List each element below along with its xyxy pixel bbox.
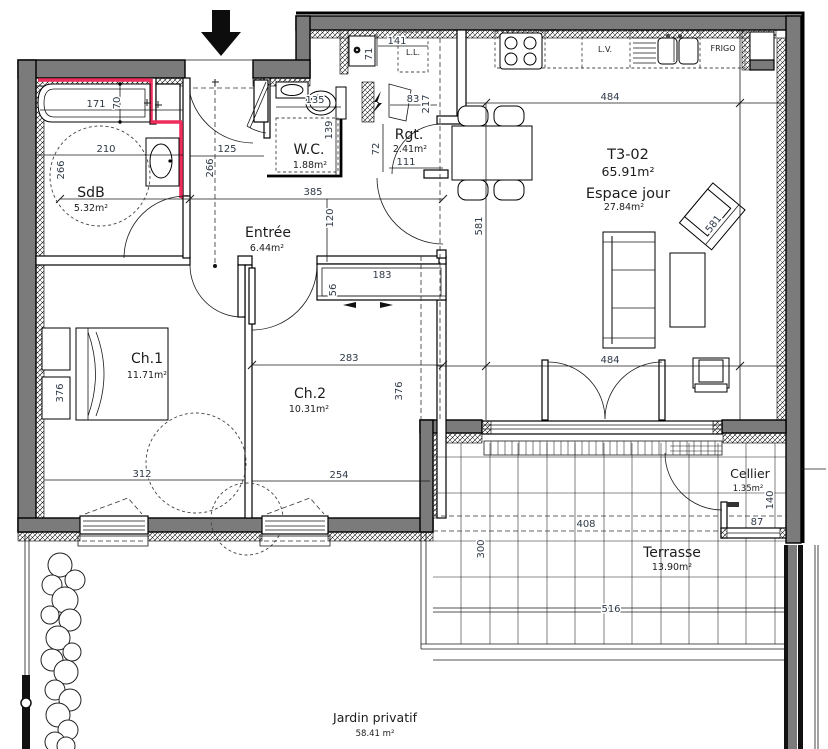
dim-label: 210	[96, 144, 115, 155]
appliance-label-frigo: FRIGO	[710, 44, 735, 53]
appliance-label-ll: L.L.	[406, 48, 420, 57]
terrace-decking	[484, 441, 722, 455]
small-armchair-icon	[693, 358, 729, 392]
sdb-door-arc	[124, 196, 186, 258]
floor-plan: SdB 5.32m² Entrée 6.44m² W.C. 1.88m² Rgt…	[0, 0, 828, 749]
ch1-door-leaf	[238, 265, 245, 317]
entrance-arrow-icon	[201, 10, 241, 56]
french-doors	[542, 360, 665, 420]
kitchen-return-panel	[750, 32, 774, 62]
dim-label: 71	[364, 48, 375, 61]
sofa-icon	[603, 232, 655, 348]
room-area-espace-jour: 27.84m²	[604, 202, 644, 213]
dim-label: 254	[329, 470, 348, 481]
dim-label: 83	[407, 94, 420, 105]
room-label-rgt: Rgt.	[395, 127, 424, 143]
room-label-ch2: Ch.2	[294, 386, 326, 402]
room-label-terrasse: Terrasse	[642, 545, 701, 561]
window-ch1	[78, 498, 148, 546]
room-area-ch1: 11.71m²	[127, 370, 167, 381]
dining-table-icon	[452, 106, 532, 200]
dim-label: 266	[205, 158, 216, 177]
room-area-ch2: 10.31m²	[289, 404, 329, 415]
dim-label: 581	[474, 216, 485, 235]
drainer-icon	[633, 38, 656, 63]
dim-label: 111	[396, 157, 415, 168]
dim-label: 484	[600, 92, 619, 103]
dim-label: 516	[601, 604, 620, 615]
room-area-wc: 1.88m²	[293, 160, 327, 171]
dim-label: 135	[305, 95, 324, 106]
dim-label: 376	[55, 383, 66, 402]
dim-label: 125	[217, 144, 236, 155]
ch2-door-arc	[252, 265, 317, 330]
room-area-jardin: 58.41 m²	[356, 729, 395, 739]
living-door-arc	[377, 178, 443, 244]
room-area-entree: 6.44m²	[250, 243, 284, 254]
ch1-door-arc	[190, 265, 242, 317]
floor-plan-svg: SdB 5.32m² Entrée 6.44m² W.C. 1.88m² Rgt…	[0, 0, 828, 749]
appliance-label-lv: L.V.	[598, 45, 612, 54]
dim-label: 300	[476, 539, 487, 558]
dim-label: 141	[387, 36, 406, 47]
garden-boundary	[21, 535, 31, 749]
electrical-panel-icon	[372, 84, 411, 121]
room-label-entree: Entrée	[245, 225, 291, 241]
living-door-leaf	[424, 170, 448, 178]
turning-circle	[146, 413, 246, 513]
sliding-door-arrow-icon	[380, 302, 393, 308]
dim-label: 376	[394, 381, 405, 400]
room-area-terrasse: 13.90m²	[652, 562, 692, 573]
entry-porch	[185, 60, 253, 143]
dim-label: 385	[303, 187, 322, 198]
dim-label: 120	[325, 208, 336, 227]
sliding-bay-window	[482, 421, 722, 434]
cellier-door-arc	[665, 453, 722, 510]
hedge-icon	[41, 553, 85, 749]
coffee-table-icon	[670, 253, 705, 327]
dim-label: 283	[339, 353, 358, 364]
room-area-sdb: 5.32m²	[74, 203, 108, 214]
dim-label: 183	[372, 270, 391, 281]
dim-label: 140	[765, 490, 776, 509]
room-label-jardin: Jardin privatif	[332, 710, 418, 725]
unit-label: T3-02	[606, 147, 649, 163]
dim-label: 72	[371, 143, 382, 156]
room-label-ch1: Ch.1	[131, 351, 163, 367]
dim-label: 266	[56, 160, 67, 179]
sliding-door-arrow-icon	[343, 302, 356, 308]
sdb-door-leaf	[183, 196, 190, 258]
room-label-sdb: SdB	[77, 185, 104, 201]
window-ch2	[260, 498, 330, 546]
unit-area: 65.91m²	[602, 164, 655, 179]
room-label-cellier: Cellier	[730, 466, 771, 481]
dim-label: 70	[112, 97, 123, 110]
dim-label: 217	[421, 94, 432, 113]
dim-label: 87	[751, 517, 764, 528]
room-area-rgt: 2.41m²	[393, 144, 427, 155]
room-area-cellier: 1.35m²	[733, 484, 764, 494]
stove-icon	[500, 33, 542, 69]
room-label-wc: W.C.	[294, 142, 325, 158]
nightstand-icon	[42, 328, 70, 370]
dim-label: 56	[328, 284, 339, 297]
ch2-door-leaf	[249, 268, 255, 324]
dim-label: 408	[576, 519, 595, 530]
room-label-espace-jour: Espace jour	[586, 186, 670, 202]
dim-label: 171	[86, 99, 105, 110]
dim-label: 139	[324, 120, 335, 139]
dim-label: 312	[132, 469, 151, 480]
dim-label: 484	[600, 355, 619, 366]
wc-door-arc	[247, 126, 266, 133]
